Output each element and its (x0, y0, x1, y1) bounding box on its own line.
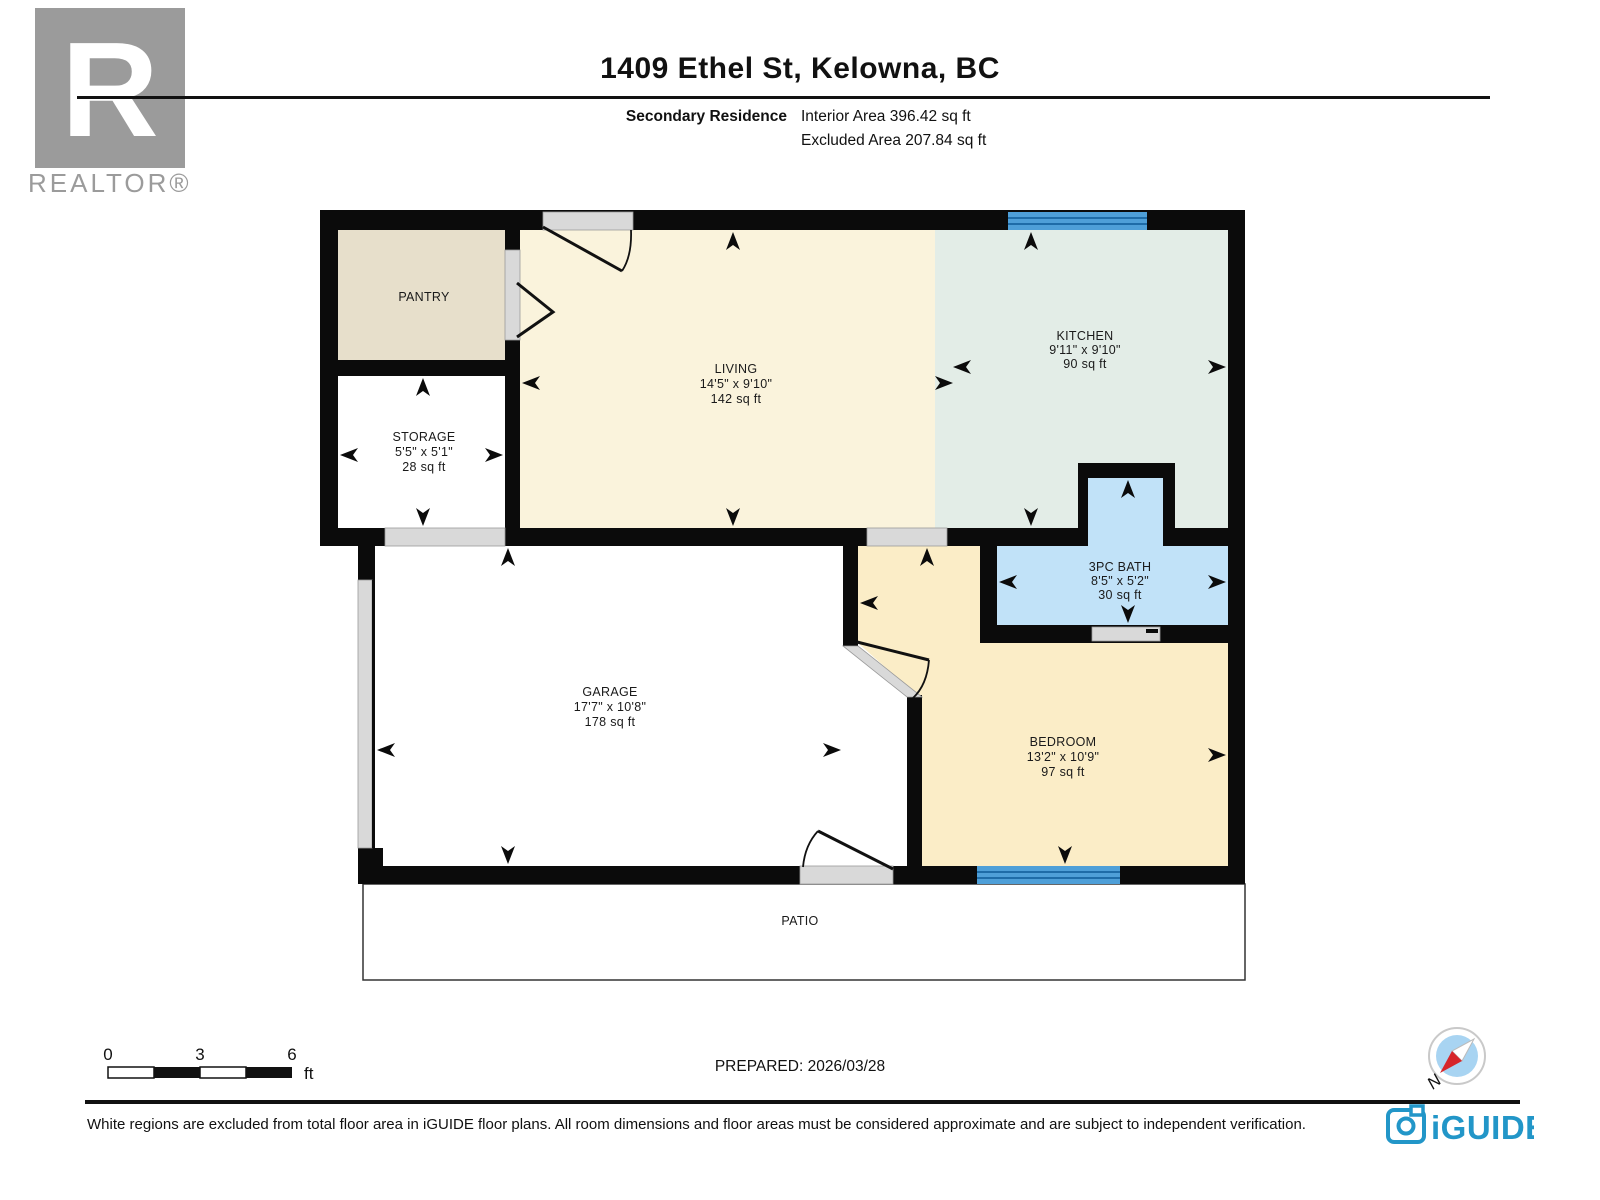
wall-garage-left-top (358, 528, 375, 580)
entry-opening (543, 212, 633, 230)
label-storage-area: 28 sq ft (402, 460, 446, 474)
wall-shower-right (1163, 463, 1175, 546)
pantry-opening (505, 250, 520, 340)
patio-opening (800, 866, 893, 884)
floor-plan-drawing: PANTRY STORAGE 5'5" x 5'1" 28 sq ft LIVI… (0, 0, 1600, 1200)
iguide-camera-tab (1411, 1106, 1423, 1115)
label-bedroom-dims: 13'2" x 10'9" (1027, 750, 1099, 764)
footer-divider (85, 1100, 1520, 1104)
bedroom-window (977, 866, 1120, 884)
garage-door (358, 580, 372, 848)
prepared-date: PREPARED: 2026/03/28 (0, 1058, 1600, 1076)
label-kitchen-dims: 9'11" x 9'10" (1049, 343, 1121, 357)
hall-opening (867, 528, 947, 546)
iguide-logo-text: iGUIDE (1431, 1109, 1534, 1146)
disclaimer-text: White regions are excluded from total fl… (87, 1116, 1306, 1133)
label-bath-dims: 8'5" x 5'2" (1091, 574, 1149, 588)
label-living-dims: 14'5" x 9'10" (700, 377, 772, 391)
wall-pantry-divider (320, 360, 520, 376)
wall-shower-top (1078, 463, 1175, 478)
label-bath: 3PC BATH (1089, 560, 1152, 574)
wall-garage-right-upper (843, 528, 858, 646)
label-patio: PATIO (781, 914, 818, 928)
label-bedroom: BEDROOM (1030, 735, 1097, 749)
label-pantry: PANTRY (398, 290, 450, 304)
label-garage: GARAGE (582, 685, 637, 699)
realtor-logo: R (35, 8, 195, 173)
wall-bedroom-left (907, 695, 922, 884)
storage-opening (385, 528, 505, 546)
label-bath-area: 30 sq ft (1098, 588, 1142, 602)
bath-door-stop (1146, 629, 1158, 633)
realtor-logo-mark: R (35, 8, 185, 168)
compass-icon: N (1420, 1022, 1500, 1100)
label-garage-area: 178 sq ft (585, 715, 636, 729)
label-living: LIVING (715, 362, 758, 376)
header-divider (77, 96, 1490, 99)
realtor-logo-letter: R (61, 14, 159, 165)
iguide-camera-lens (1399, 1119, 1414, 1134)
garage-door-line (372, 580, 375, 848)
wall-left-upper (320, 210, 338, 546)
iguide-logo: iGUIDE (1384, 1102, 1534, 1150)
room-patio-fill (363, 884, 1245, 980)
label-storage: STORAGE (393, 430, 456, 444)
label-kitchen: KITCHEN (1057, 329, 1114, 343)
label-garage-dims: 17'7" x 10'8" (574, 700, 646, 714)
label-kitchen-area: 90 sq ft (1063, 357, 1107, 371)
floor-plan-page: R REALTOR® 1409 Ethel St, Kelowna, BC Se… (0, 0, 1600, 1200)
label-living-area: 142 sq ft (711, 392, 762, 406)
label-bedroom-area: 97 sq ft (1041, 765, 1085, 779)
kitchen-window (1008, 212, 1147, 230)
label-storage-dims: 5'5" x 5'1" (395, 445, 453, 459)
wall-right (1228, 210, 1245, 884)
